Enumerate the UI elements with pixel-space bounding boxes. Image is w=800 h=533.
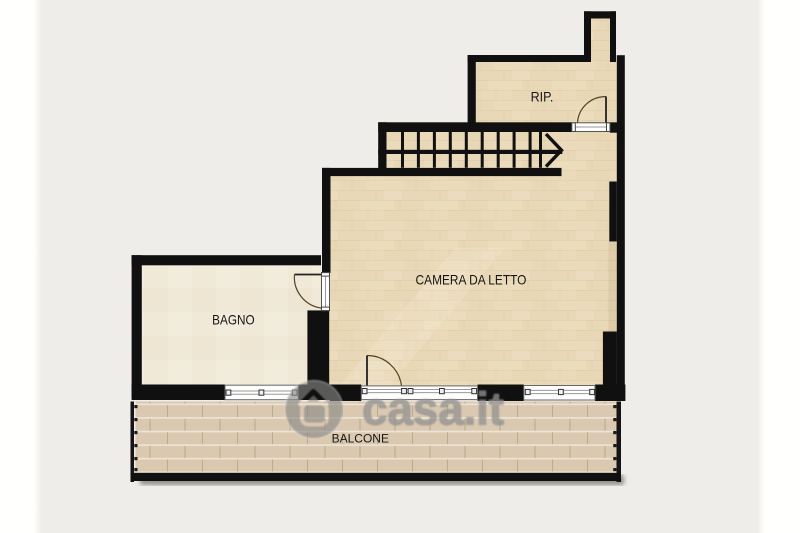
svg-text:casa.it: casa.it — [362, 383, 504, 435]
svg-text:CAMERA DA LETTO: CAMERA DA LETTO — [416, 273, 527, 288]
svg-text:RIP.: RIP. — [531, 90, 554, 105]
svg-text:BAGNO: BAGNO — [212, 313, 255, 328]
